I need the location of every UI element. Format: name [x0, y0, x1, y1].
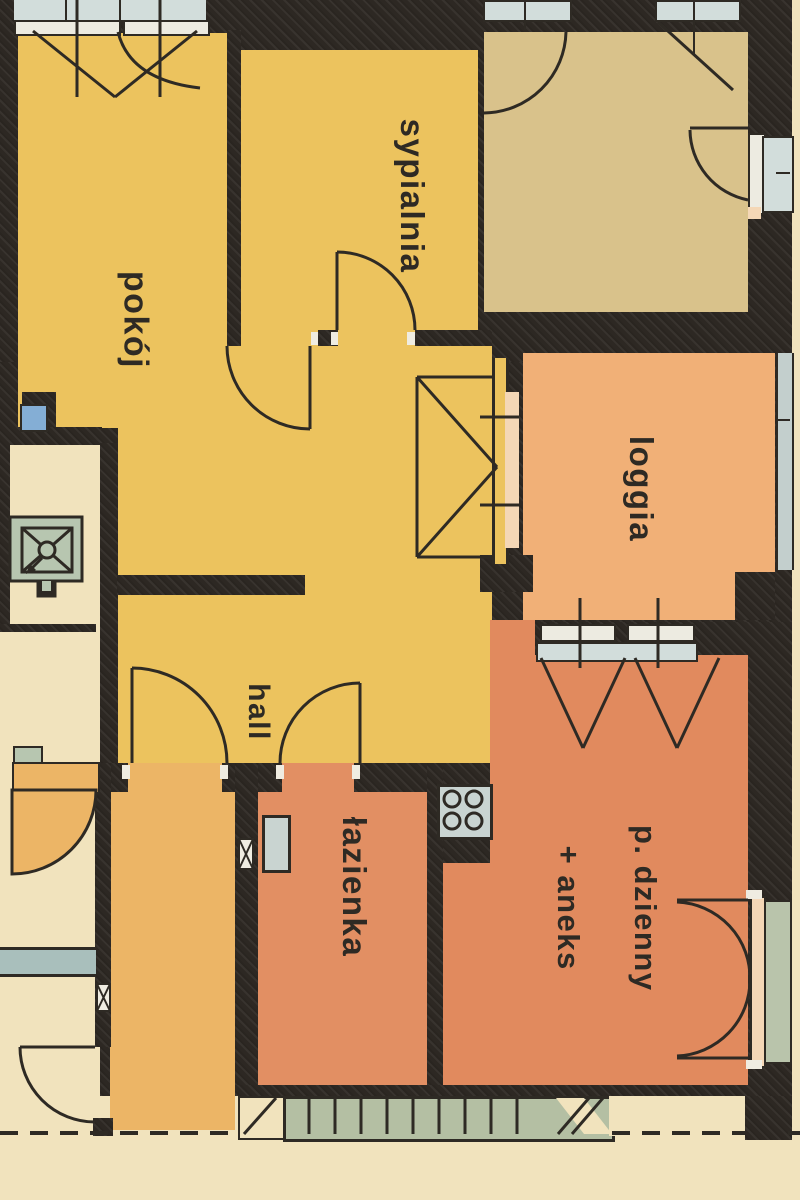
elevator-icon [10, 517, 82, 596]
window-loggia-living-frame-1 [540, 624, 616, 642]
jamb-tick [352, 765, 360, 779]
wall-hall-top-a [227, 330, 241, 346]
wall-loggia-notch [735, 572, 775, 620]
duct-band [0, 947, 96, 977]
window-loggia-glazing [776, 353, 794, 570]
label-pokoj: pokój [116, 271, 155, 369]
label-living: p. dzienny + aneks [509, 784, 703, 991]
shaft-blue-square [20, 404, 48, 432]
wall-vestibule-stub [93, 1118, 113, 1136]
jamb-tick [122, 765, 130, 779]
label-lazienka: łazienka [335, 817, 373, 957]
floor-plan: pokój sypialnia loggia hall łazienka p. … [0, 0, 800, 1200]
window-hall-loggia-sill [505, 392, 519, 548]
window-loggia-living-glass [536, 642, 698, 662]
doorway-vestibule-gap [128, 763, 222, 792]
wall-vestibule-left [95, 763, 111, 1047]
window-neighbor-right-glass [762, 136, 794, 213]
door-entry [20, 1047, 95, 1122]
wall-hall-mid [117, 575, 305, 595]
jamb-tick [311, 332, 318, 345]
wall-vestibule-lazienka [235, 763, 258, 1085]
wall-hall-top-c [415, 330, 492, 346]
wall-sypialnia-left [227, 30, 241, 346]
wall-hall-left [100, 443, 118, 765]
window-loggia-living-frame-2 [627, 624, 695, 642]
jamb-tick [407, 332, 415, 345]
wall-pokoj-bottom [0, 427, 102, 445]
jamb-tick [220, 765, 228, 779]
window-pokoj-glass [14, 0, 206, 22]
window-neighbor-glass-1 [483, 0, 572, 22]
window-pokoj-sill-2 [123, 20, 210, 36]
door-cap-top [746, 890, 762, 899]
label-sypialnia: sypialnia [393, 119, 431, 274]
stairs-first-step [238, 1096, 287, 1140]
room-living-ext [443, 863, 503, 1085]
label-loggia: loggia [622, 436, 660, 542]
stairs-landing [609, 1096, 745, 1136]
window-pokoj-sill-1 [14, 20, 121, 36]
window-neighbor-right-wedge [748, 207, 761, 219]
door-cap-bottom [746, 1060, 762, 1069]
cooktop [437, 784, 493, 840]
jamb-tick [331, 332, 338, 345]
corridor-stub [12, 762, 100, 794]
window-neighbor-glass-2 [655, 0, 741, 22]
window-living-glass [764, 900, 792, 1064]
door-corridor-swing [12, 790, 96, 874]
label-living-line1: p. dzienny [628, 825, 663, 992]
jamb-tick [276, 765, 284, 779]
room-vestibule [110, 790, 235, 1130]
washbasin [262, 815, 291, 873]
doorway-lazienka-gap [282, 763, 354, 792]
room-sypialnia [241, 50, 478, 346]
stairs-band [283, 1096, 615, 1142]
wall-left-strip [0, 445, 10, 626]
room-hall [118, 345, 492, 763]
label-hall: hall [241, 683, 275, 741]
wall-bottom-right [745, 1096, 792, 1140]
wall-landing-edge [0, 624, 96, 632]
room-neighbor [484, 32, 748, 312]
label-living-line2: + aneks [551, 846, 586, 971]
